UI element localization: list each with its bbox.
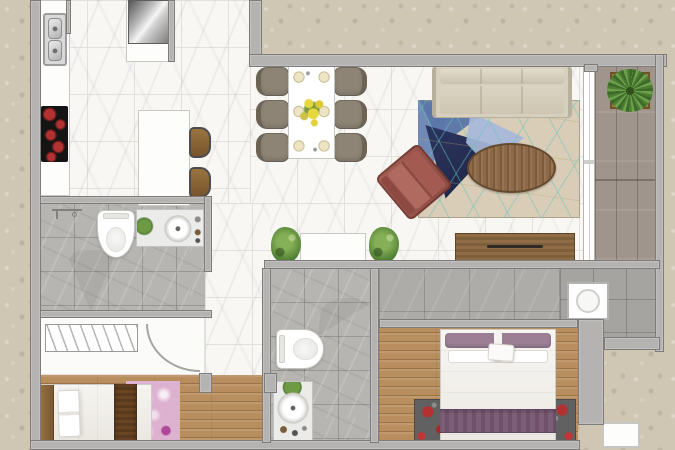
tv-console xyxy=(455,233,575,261)
entry-console xyxy=(300,233,366,261)
wall-kitchen-stub xyxy=(66,0,71,34)
dining-chair-6 xyxy=(334,133,367,162)
balcony-sliding-door xyxy=(583,62,595,262)
wall-balcony-jamb xyxy=(584,64,598,72)
dining-chair-2 xyxy=(256,100,289,129)
ac-unit xyxy=(602,422,640,448)
wall-bath1-bottom xyxy=(40,310,212,318)
wall-entry xyxy=(264,260,660,269)
wardrobe-rail xyxy=(45,324,138,352)
wall-bedroom1-jamb-left xyxy=(199,373,212,393)
dining-chair-5 xyxy=(334,100,367,129)
corridor-floor xyxy=(379,266,560,324)
bar-stool-2 xyxy=(189,167,211,198)
hall-floor xyxy=(205,203,270,385)
wall-outer-right xyxy=(655,54,664,352)
bed-1-runner xyxy=(114,384,137,443)
dining-table xyxy=(288,64,335,159)
cooktop xyxy=(41,106,68,162)
wall-bath1-top xyxy=(40,196,212,204)
dining-chair-3 xyxy=(256,133,289,162)
kitchen-island xyxy=(138,110,190,206)
shower-head xyxy=(52,209,82,221)
wall-bedroom2-top xyxy=(379,319,578,328)
wall-bath2-right xyxy=(370,268,379,443)
kitchen-sink xyxy=(43,13,67,66)
wall-bedroom2-right xyxy=(578,319,604,425)
wall-utility-bottom xyxy=(604,337,660,350)
coffee-table xyxy=(467,143,556,193)
washing-machine xyxy=(567,282,609,320)
bed-2-cushion xyxy=(487,343,514,362)
wall-top xyxy=(249,54,667,67)
floor-plan xyxy=(0,0,675,450)
bar-stool-1 xyxy=(189,127,211,158)
toilet-2 xyxy=(276,329,324,369)
wall-bedroom1-jamb-right xyxy=(264,373,277,393)
bed-2-runner xyxy=(440,409,556,433)
wall-outer-bottom xyxy=(30,440,580,450)
vanity-sink-1 xyxy=(136,209,204,247)
dining-chair-1 xyxy=(256,67,289,96)
entry-plant-left xyxy=(271,227,301,263)
vanity-sink-2 xyxy=(273,381,313,441)
dining-chair-4 xyxy=(334,67,367,96)
sofa xyxy=(432,66,572,118)
wall-outer-left xyxy=(30,0,41,450)
entry-plant-right xyxy=(369,227,399,263)
wall-fridge-side xyxy=(168,0,175,62)
refrigerator xyxy=(128,0,169,44)
wall-bath2-left xyxy=(262,268,271,443)
wall-bath1-right xyxy=(204,196,212,272)
balcony-plant xyxy=(610,72,650,109)
